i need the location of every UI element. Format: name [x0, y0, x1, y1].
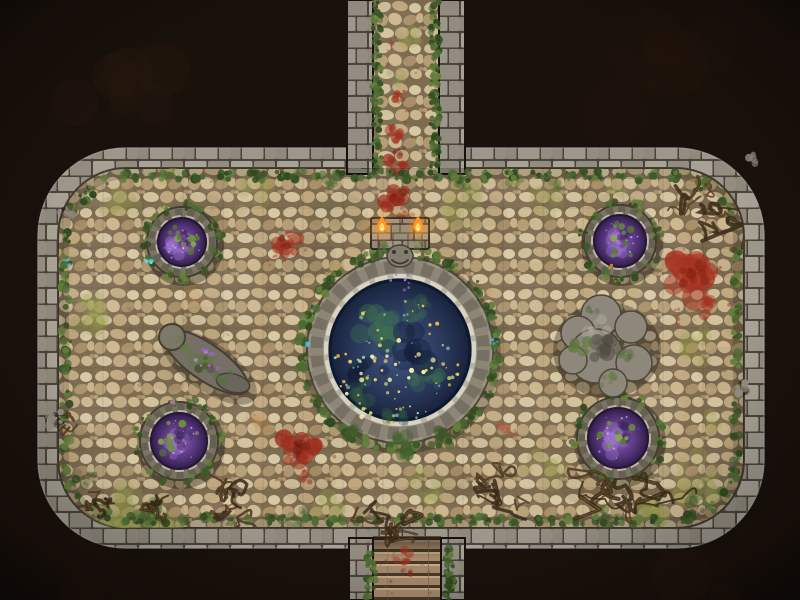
battle-map — [0, 0, 800, 600]
vignette — [0, 0, 800, 600]
battle-map-canvas[interactable] — [0, 0, 800, 600]
layer-fx — [0, 0, 800, 600]
